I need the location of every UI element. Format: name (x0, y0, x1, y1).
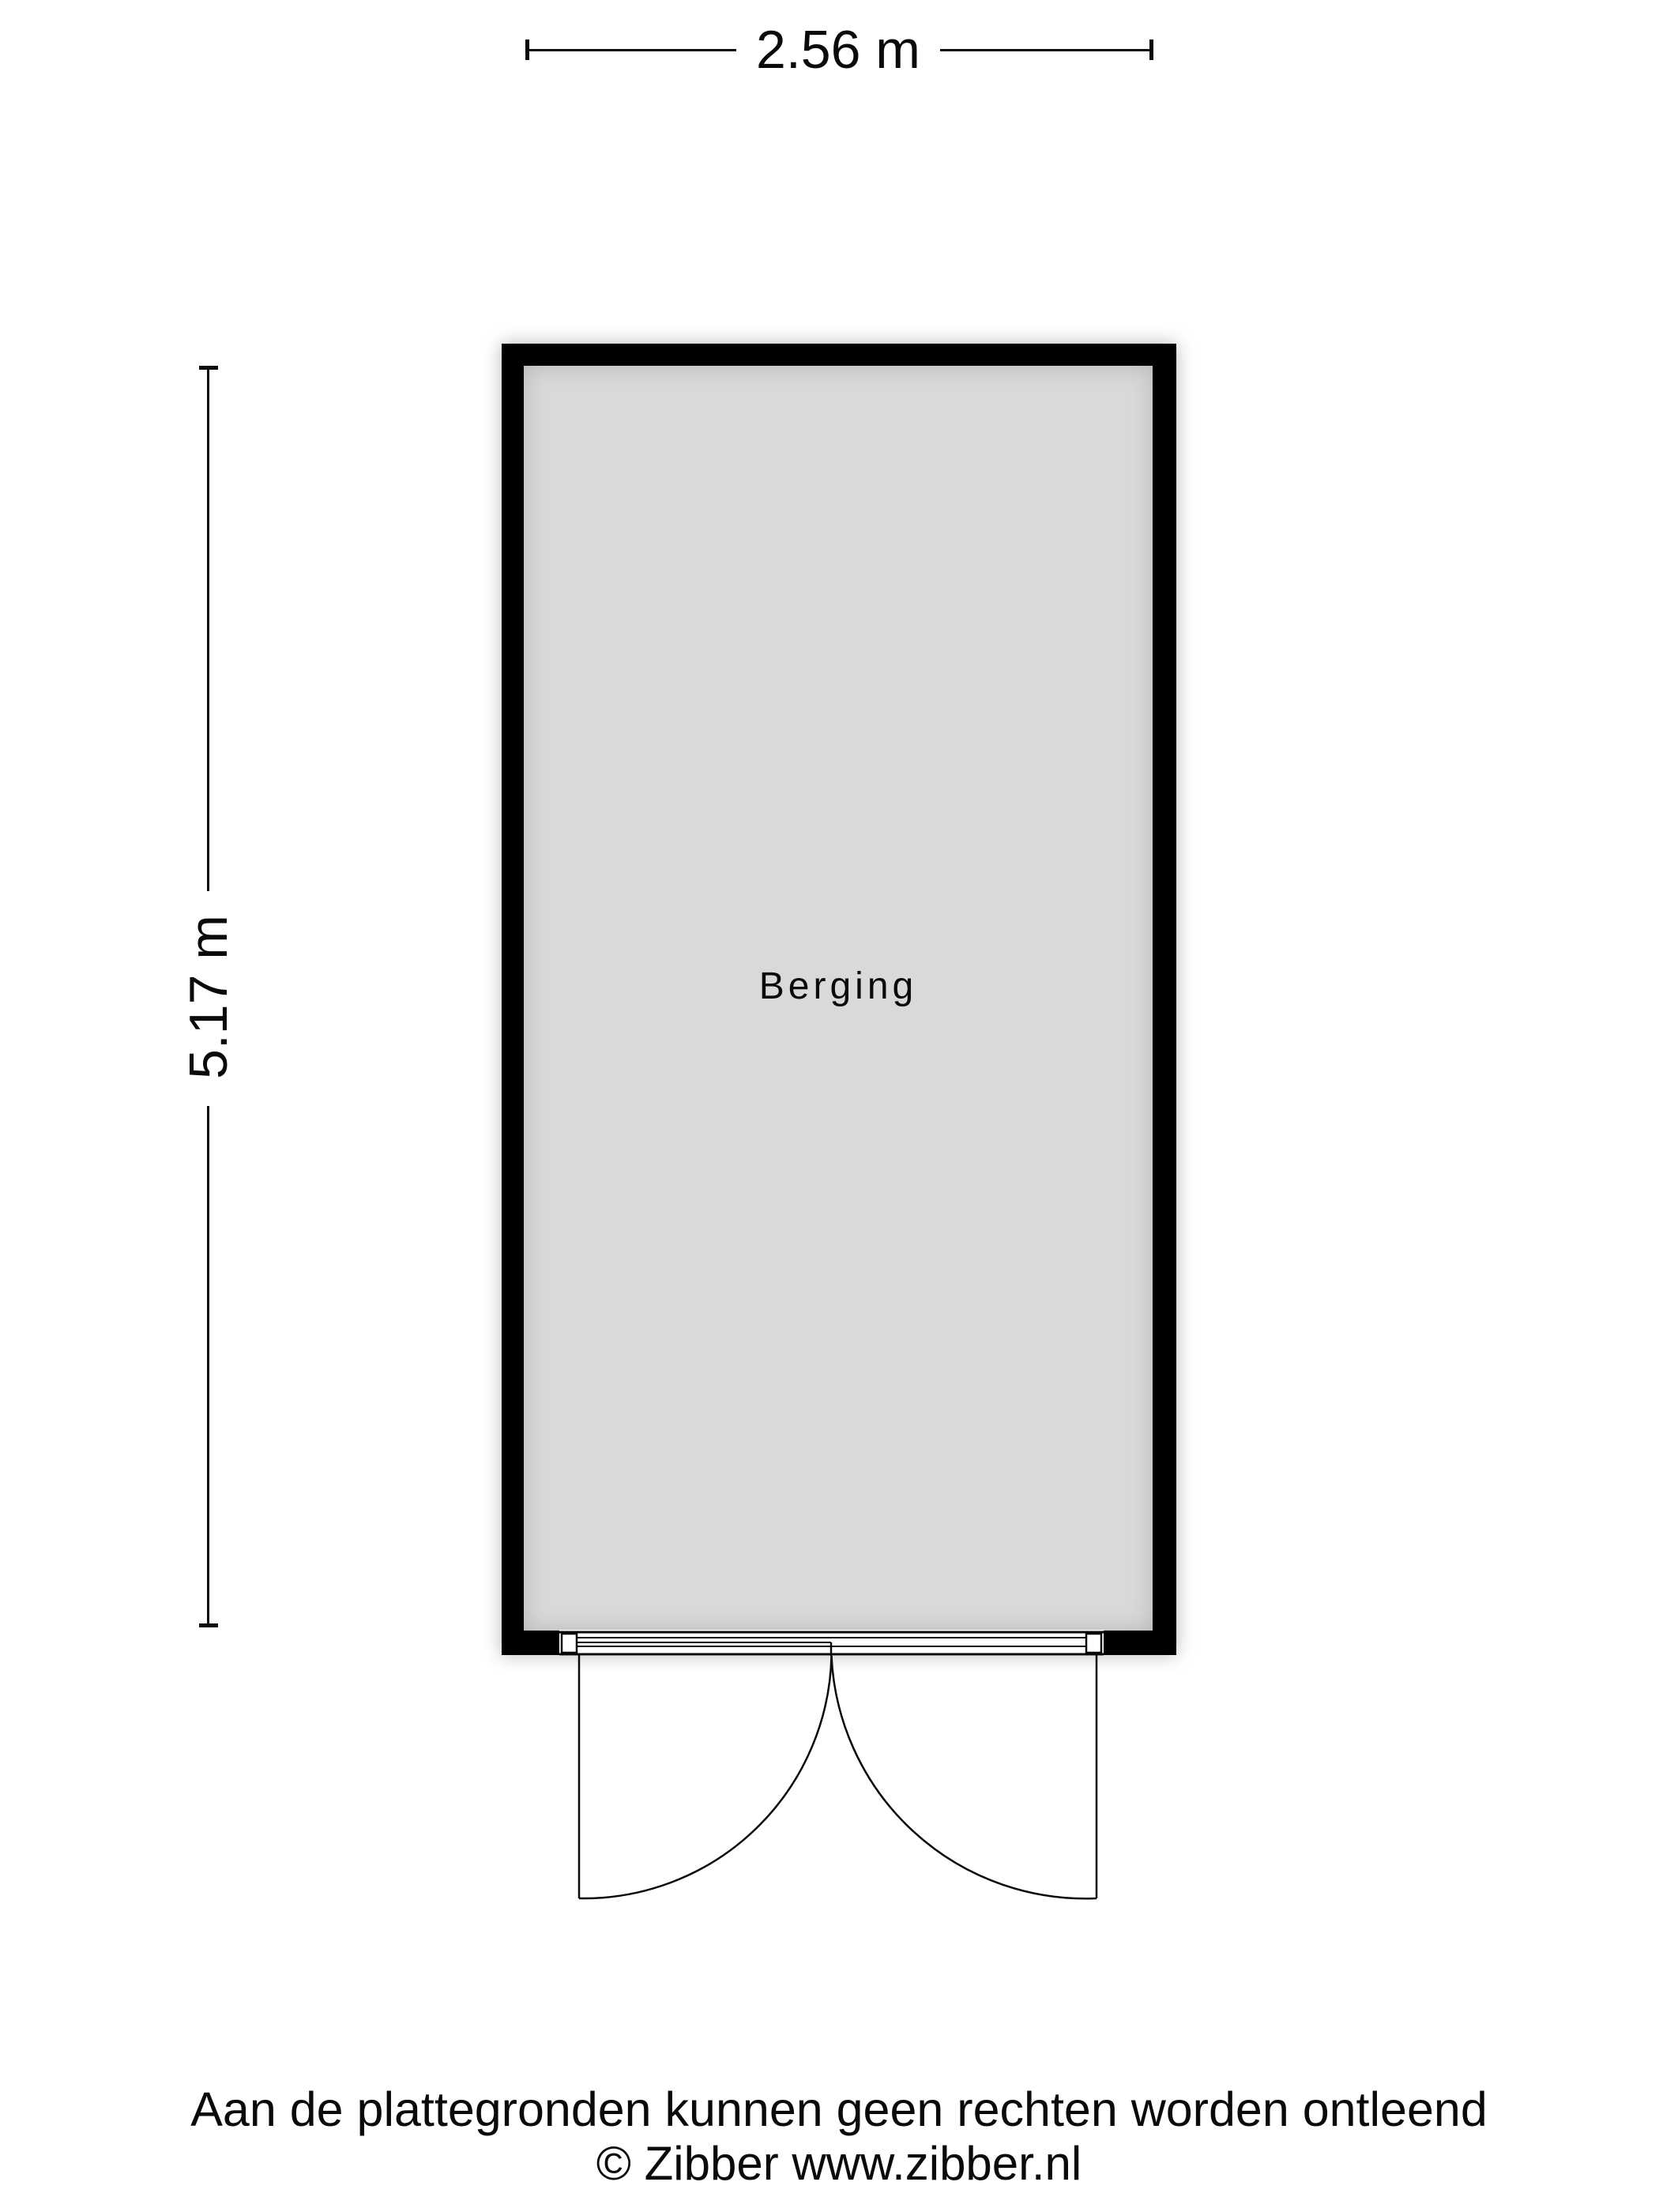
copyright-text: © Zibber www.zibber.nl (9, 2138, 1659, 2190)
disclaimer-text: Aan de plattegronden kunnen geen rechten… (9, 2082, 1659, 2136)
door-jamb-right (1086, 1634, 1101, 1653)
floorplan-canvas: 2.56 m 5.17 m Berging Aan de plattegrond (0, 0, 1659, 2212)
door-swing-arc-left (579, 1656, 832, 1898)
door-jamb-left (562, 1634, 577, 1653)
door-symbol (0, 0, 1659, 2212)
door-swing-arc-right (832, 1656, 1097, 1898)
